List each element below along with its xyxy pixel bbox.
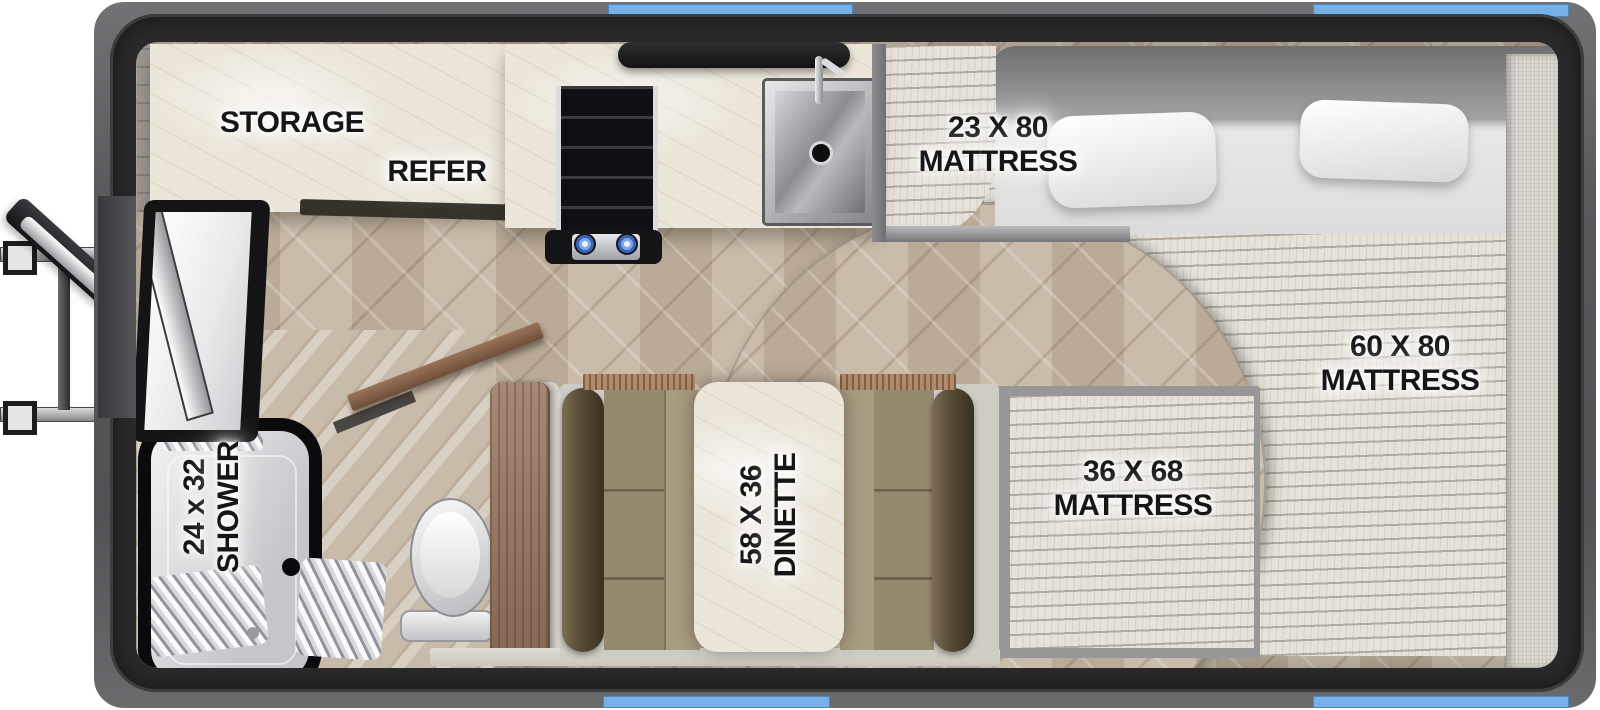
dinette-bolster-right <box>932 388 974 652</box>
bunk-mattress-label: 23 X 80 MATTRESS <box>919 111 1078 179</box>
curtain-outside-shower <box>295 557 388 661</box>
dinette-backrest-right <box>874 390 934 650</box>
main-size-text: 60 X 80 <box>1321 330 1480 364</box>
dinette-wood-trim-left <box>583 374 695 390</box>
bed-side-wall <box>1506 54 1558 668</box>
window-strip-bottom-right <box>1313 696 1569 708</box>
bed-step-edge <box>875 226 1130 242</box>
entry-step-rail <box>58 258 70 410</box>
floorplan-canvas: STORAGE REFER 23 X 80 MATTRESS 60 X 80 M… <box>0 0 1600 710</box>
shower-door-handle-icon <box>282 558 300 576</box>
dinette-size-text: 58 X 36 <box>735 453 769 578</box>
entry-door-frame <box>136 200 270 442</box>
entry-step-clip-bottom <box>3 401 37 435</box>
refer-label: REFER <box>387 155 486 189</box>
bunk-size-text: 23 X 80 <box>919 111 1078 145</box>
storage-label: STORAGE <box>220 106 364 140</box>
sofa-back <box>990 46 1558 120</box>
main-mattress-label: 60 X 80 MATTRESS <box>1321 330 1480 398</box>
toilet-lid <box>420 512 480 598</box>
burner-right-icon <box>616 233 638 255</box>
shower-curtain-folded <box>143 564 270 658</box>
range-oven <box>556 86 658 234</box>
dinette-backrest-left <box>604 390 664 650</box>
main-type-text: MATTRESS <box>1321 364 1480 398</box>
shower-size-text: 24 x 32 <box>178 441 212 573</box>
bunk-pillow-right <box>1299 99 1470 183</box>
dinette-seat-right <box>840 390 876 650</box>
shower-label: 24 x 32 SHOWER <box>178 441 246 573</box>
entry-step-diagonal <box>136 209 214 422</box>
side-mattress-label: 36 X 68 MATTRESS <box>1054 455 1213 523</box>
kitchen-bed-divider <box>872 44 886 242</box>
dinette-label: 58 X 36 DINETTE <box>735 453 803 578</box>
burner-left-icon <box>574 233 596 255</box>
window-strip-bottom-left <box>603 696 830 708</box>
bunk-type-text: MATTRESS <box>919 145 1078 179</box>
shower-type-text: SHOWER <box>212 441 246 573</box>
sink-drain-icon <box>809 141 833 165</box>
dinette-bolster-left <box>562 388 604 652</box>
wardrobe-panel <box>490 382 550 664</box>
entry-step-clip-top <box>3 241 37 275</box>
dinette-type-text: DINETTE <box>769 453 803 578</box>
shower-drain-icon <box>247 627 259 639</box>
entry-door-opening <box>98 196 136 418</box>
side-type-text: MATTRESS <box>1054 489 1213 523</box>
dinette-wood-trim-right <box>840 374 956 390</box>
side-size-text: 36 X 68 <box>1054 455 1213 489</box>
interior-floor: STORAGE REFER 23 X 80 MATTRESS 60 X 80 M… <box>136 42 1558 668</box>
